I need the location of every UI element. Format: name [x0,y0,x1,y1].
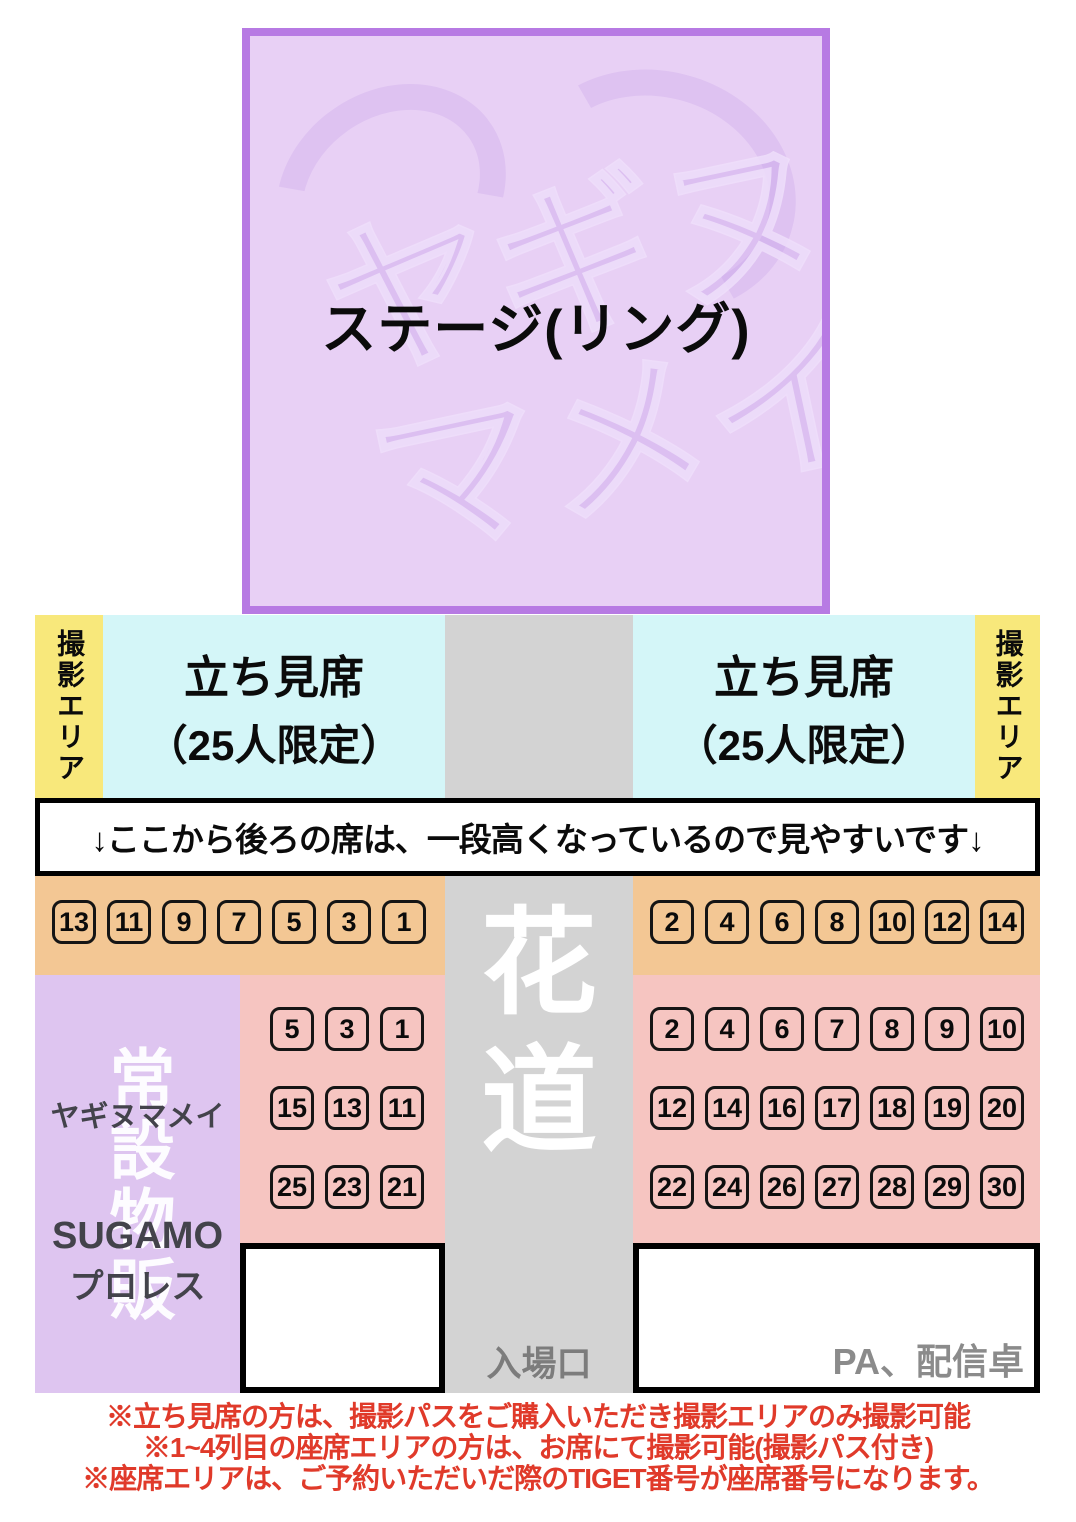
seat-12: 12 [925,900,969,944]
seat-row-right-2: 12141617181920 [650,1086,1024,1130]
stage-label: ステージ(リング) [250,284,822,364]
photo-area-left: 撮影エリア [35,615,103,798]
photo-area-right: 撮影エリア [975,615,1040,798]
seat-row-left-1: 531 [270,1007,424,1051]
seat-11: 11 [380,1086,424,1130]
seat-row-right-3: 22242627282930 [650,1165,1024,1209]
seat-26: 26 [760,1165,804,1209]
seat-13: 13 [325,1086,369,1130]
seat-17: 17 [815,1086,859,1130]
standing-right-subtitle: （25人限定） [676,712,933,773]
riser-note-text: ↓ここから後ろの席は、一段高くなっているので見やすいです↓ [91,813,983,861]
seat-14: 14 [705,1086,749,1130]
merch-performer-name: ヤギヌマメイ [35,1093,240,1135]
seat-3: 3 [325,1007,369,1051]
standing-left-subtitle: （25人限定） [146,712,403,773]
seat-11: 11 [107,900,151,944]
seat-22: 22 [650,1165,694,1209]
seat-25: 25 [270,1165,314,1209]
standing-left-title: 立ち見席 [184,641,364,706]
seat-16: 16 [760,1086,804,1130]
hanamichi-char-1: 花 [445,905,633,1021]
seat-18: 18 [870,1086,914,1130]
seating-chart: ヤギヌ マメイ ステージ(リング) 撮影エリア 立ち見席 （25人限定） 立ち見… [0,0,1076,1522]
seat-row-left-2: 151311 [270,1086,424,1130]
seat-23: 23 [325,1165,369,1209]
seat-6: 6 [760,1007,804,1051]
seat-21: 21 [380,1165,424,1209]
seat-28: 28 [870,1165,914,1209]
seat-19: 19 [925,1086,969,1130]
standing-right-title: 立ち見席 [714,641,894,706]
seat-1: 1 [380,1007,424,1051]
seat-4: 4 [705,900,749,944]
seat-1: 1 [382,900,426,944]
seat-30: 30 [980,1165,1024,1209]
hanamichi-aisle: 花 道 入場口 [445,615,633,1393]
seat-2: 2 [650,1007,694,1051]
note-line-2: ※1~4列目の座席エリアの方は、お席にて撮影可能(撮影パス付き) [0,1432,1076,1463]
seat-row-right-front: 2468101214 [650,900,1024,944]
seat-2: 2 [650,900,694,944]
seat-24: 24 [705,1165,749,1209]
seat-29: 29 [925,1165,969,1209]
seat-4: 4 [705,1007,749,1051]
seat-12: 12 [650,1086,694,1130]
photo-area-right-label: 撮影エリア [988,629,1028,784]
footer-notes: ※立ち見席の方は、撮影パスをご購入いただき撮影エリアのみ撮影可能 ※1~4列目の… [0,1401,1076,1494]
seat-7: 7 [815,1007,859,1051]
note-line-3: ※座席エリアは、ご予約いただいだ際のTIGET番号が座席番号になります。 [0,1463,1076,1494]
front-row-right: 2468101214 [633,876,1040,975]
seat-row-right-1: 24678910 [650,1007,1024,1051]
pa-desk-label: PA、配信卓 [833,1333,1024,1385]
seat-10: 10 [870,900,914,944]
seat-15: 15 [270,1086,314,1130]
front-row-left: 131197531 [35,876,445,975]
stage-area: ヤギヌ マメイ ステージ(リング) [242,28,830,614]
hanamichi-char-2: 道 [445,1043,633,1159]
seat-3: 3 [327,900,371,944]
seat-13: 13 [52,900,96,944]
photo-area-left-label: 撮影エリア [49,629,89,784]
seat-20: 20 [980,1086,1024,1130]
seat-row-left-3: 252321 [270,1165,424,1209]
seat-14: 14 [980,900,1024,944]
seat-8: 8 [870,1007,914,1051]
merch-brand-line2: プロレス [35,1259,240,1308]
merch-brand-line1: SUGAMO [35,1215,240,1258]
seat-5: 5 [272,900,316,944]
note-line-1: ※立ち見席の方は、撮影パスをご購入いただき撮影エリアのみ撮影可能 [0,1401,1076,1432]
empty-box-left [240,1243,445,1393]
standing-area-left: 立ち見席 （25人限定） [103,615,445,798]
seat-9: 9 [162,900,206,944]
seat-block-right: 24678910 12141617181920 22242627282930 [633,975,1040,1243]
seat-7: 7 [217,900,261,944]
entrance-label: 入場口 [445,1336,633,1387]
riser-note-banner: ↓ここから後ろの席は、一段高くなっているので見やすいです↓ [35,798,1040,876]
seat-row-left-front: 131197531 [52,900,426,944]
seat-5: 5 [270,1007,314,1051]
seat-block-left: 531 151311 252321 [240,975,445,1243]
standing-area-right: 立ち見席 （25人限定） [633,615,975,798]
pa-streaming-desk-box: PA、配信卓 [633,1243,1040,1393]
seat-10: 10 [980,1007,1024,1051]
seat-6: 6 [760,900,804,944]
seat-9: 9 [925,1007,969,1051]
seat-27: 27 [815,1165,859,1209]
seat-8: 8 [815,900,859,944]
merch-area: 常設物販 ヤギヌマメイ SUGAMO プロレス [35,975,240,1393]
